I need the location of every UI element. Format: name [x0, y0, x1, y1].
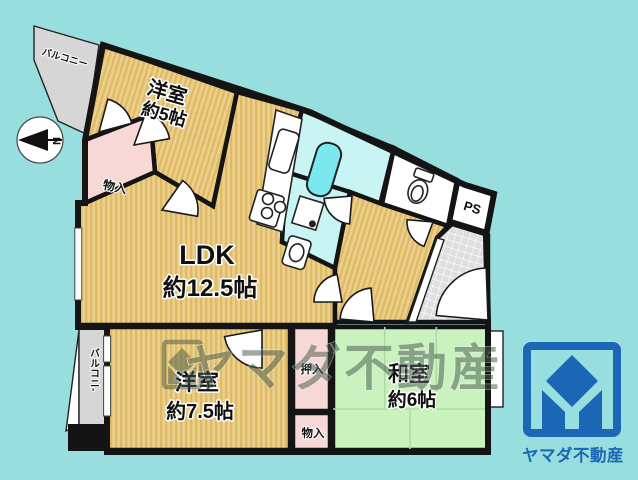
- watermark-text: ヤマダ不動産: [185, 340, 503, 396]
- balcony-left-label: バルコニ-: [88, 348, 100, 392]
- ldk-name: LDK: [179, 240, 235, 270]
- compass-north-label: N: [50, 137, 62, 145]
- ldk-size: 約12.5帖: [163, 274, 258, 302]
- youshitsu75-size: 約7.5帖: [166, 399, 234, 423]
- closet-bottom-label: 物入: [302, 426, 325, 440]
- watermark: ヤマダ不動産: [164, 340, 503, 396]
- balcony-left-outer-edge: [66, 330, 79, 431]
- window-youshitsu75-b: [104, 366, 111, 416]
- stove-burner-icon: [263, 194, 274, 205]
- floorplan-canvas: N バルコニー 洋室 約5帖 物入 LDK 約12.5帖 PS 洋室 約7.5帖…: [0, 0, 638, 480]
- stove-burner-icon: [275, 202, 286, 213]
- window-youshitsu75-a: [104, 336, 111, 362]
- brand-logo: ヤマダ不動産: [522, 346, 624, 465]
- window-ldk: [75, 228, 82, 300]
- stove-burner-icon: [262, 208, 273, 219]
- compass-icon: N: [17, 117, 63, 163]
- brand-name-text: ヤマダ不動産: [522, 445, 624, 465]
- brand-logo-diamond-icon: [546, 355, 598, 407]
- floorplan-svg: N バルコニー 洋室 約5帖 物入 LDK 約12.5帖 PS 洋室 約7.5帖…: [0, 0, 638, 480]
- balcony-end-wall: [68, 424, 107, 451]
